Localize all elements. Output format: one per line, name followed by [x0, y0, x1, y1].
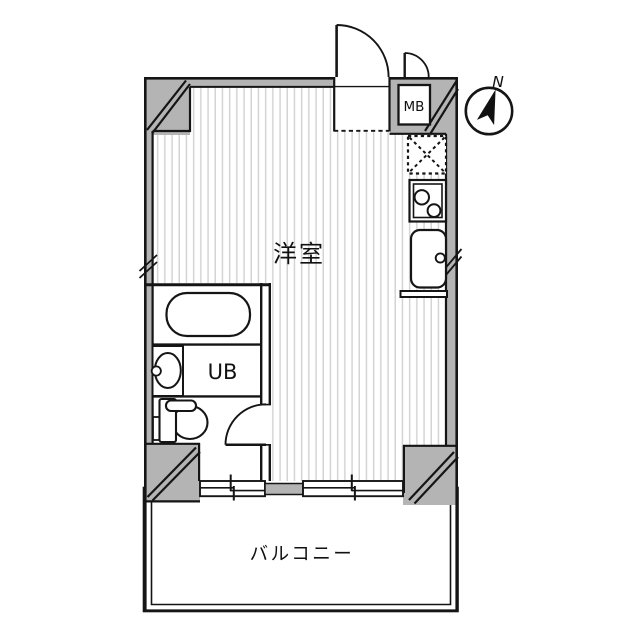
- kitchen-sink: [411, 230, 446, 288]
- meter-box-label: MB: [404, 99, 425, 115]
- bathtub: [167, 293, 251, 336]
- compass-north-label: N: [492, 73, 504, 91]
- balcony-label: バルコニー: [250, 544, 355, 565]
- counter-edge: [401, 291, 448, 297]
- main-room-label: 洋室: [273, 240, 325, 268]
- floorplan-drawing: N 洋室 UB MB バルコニー: [0, 0, 640, 640]
- unit-bath-label: UB: [208, 360, 238, 384]
- entrance-floor: [334, 87, 390, 131]
- gas-stove: [410, 180, 447, 222]
- vanity-sink: [152, 346, 183, 396]
- window-wall-segment: [265, 484, 303, 495]
- refrigerator-space: [408, 136, 446, 174]
- floorplan-image: N 洋室 UB MB バルコニー: [0, 0, 640, 640]
